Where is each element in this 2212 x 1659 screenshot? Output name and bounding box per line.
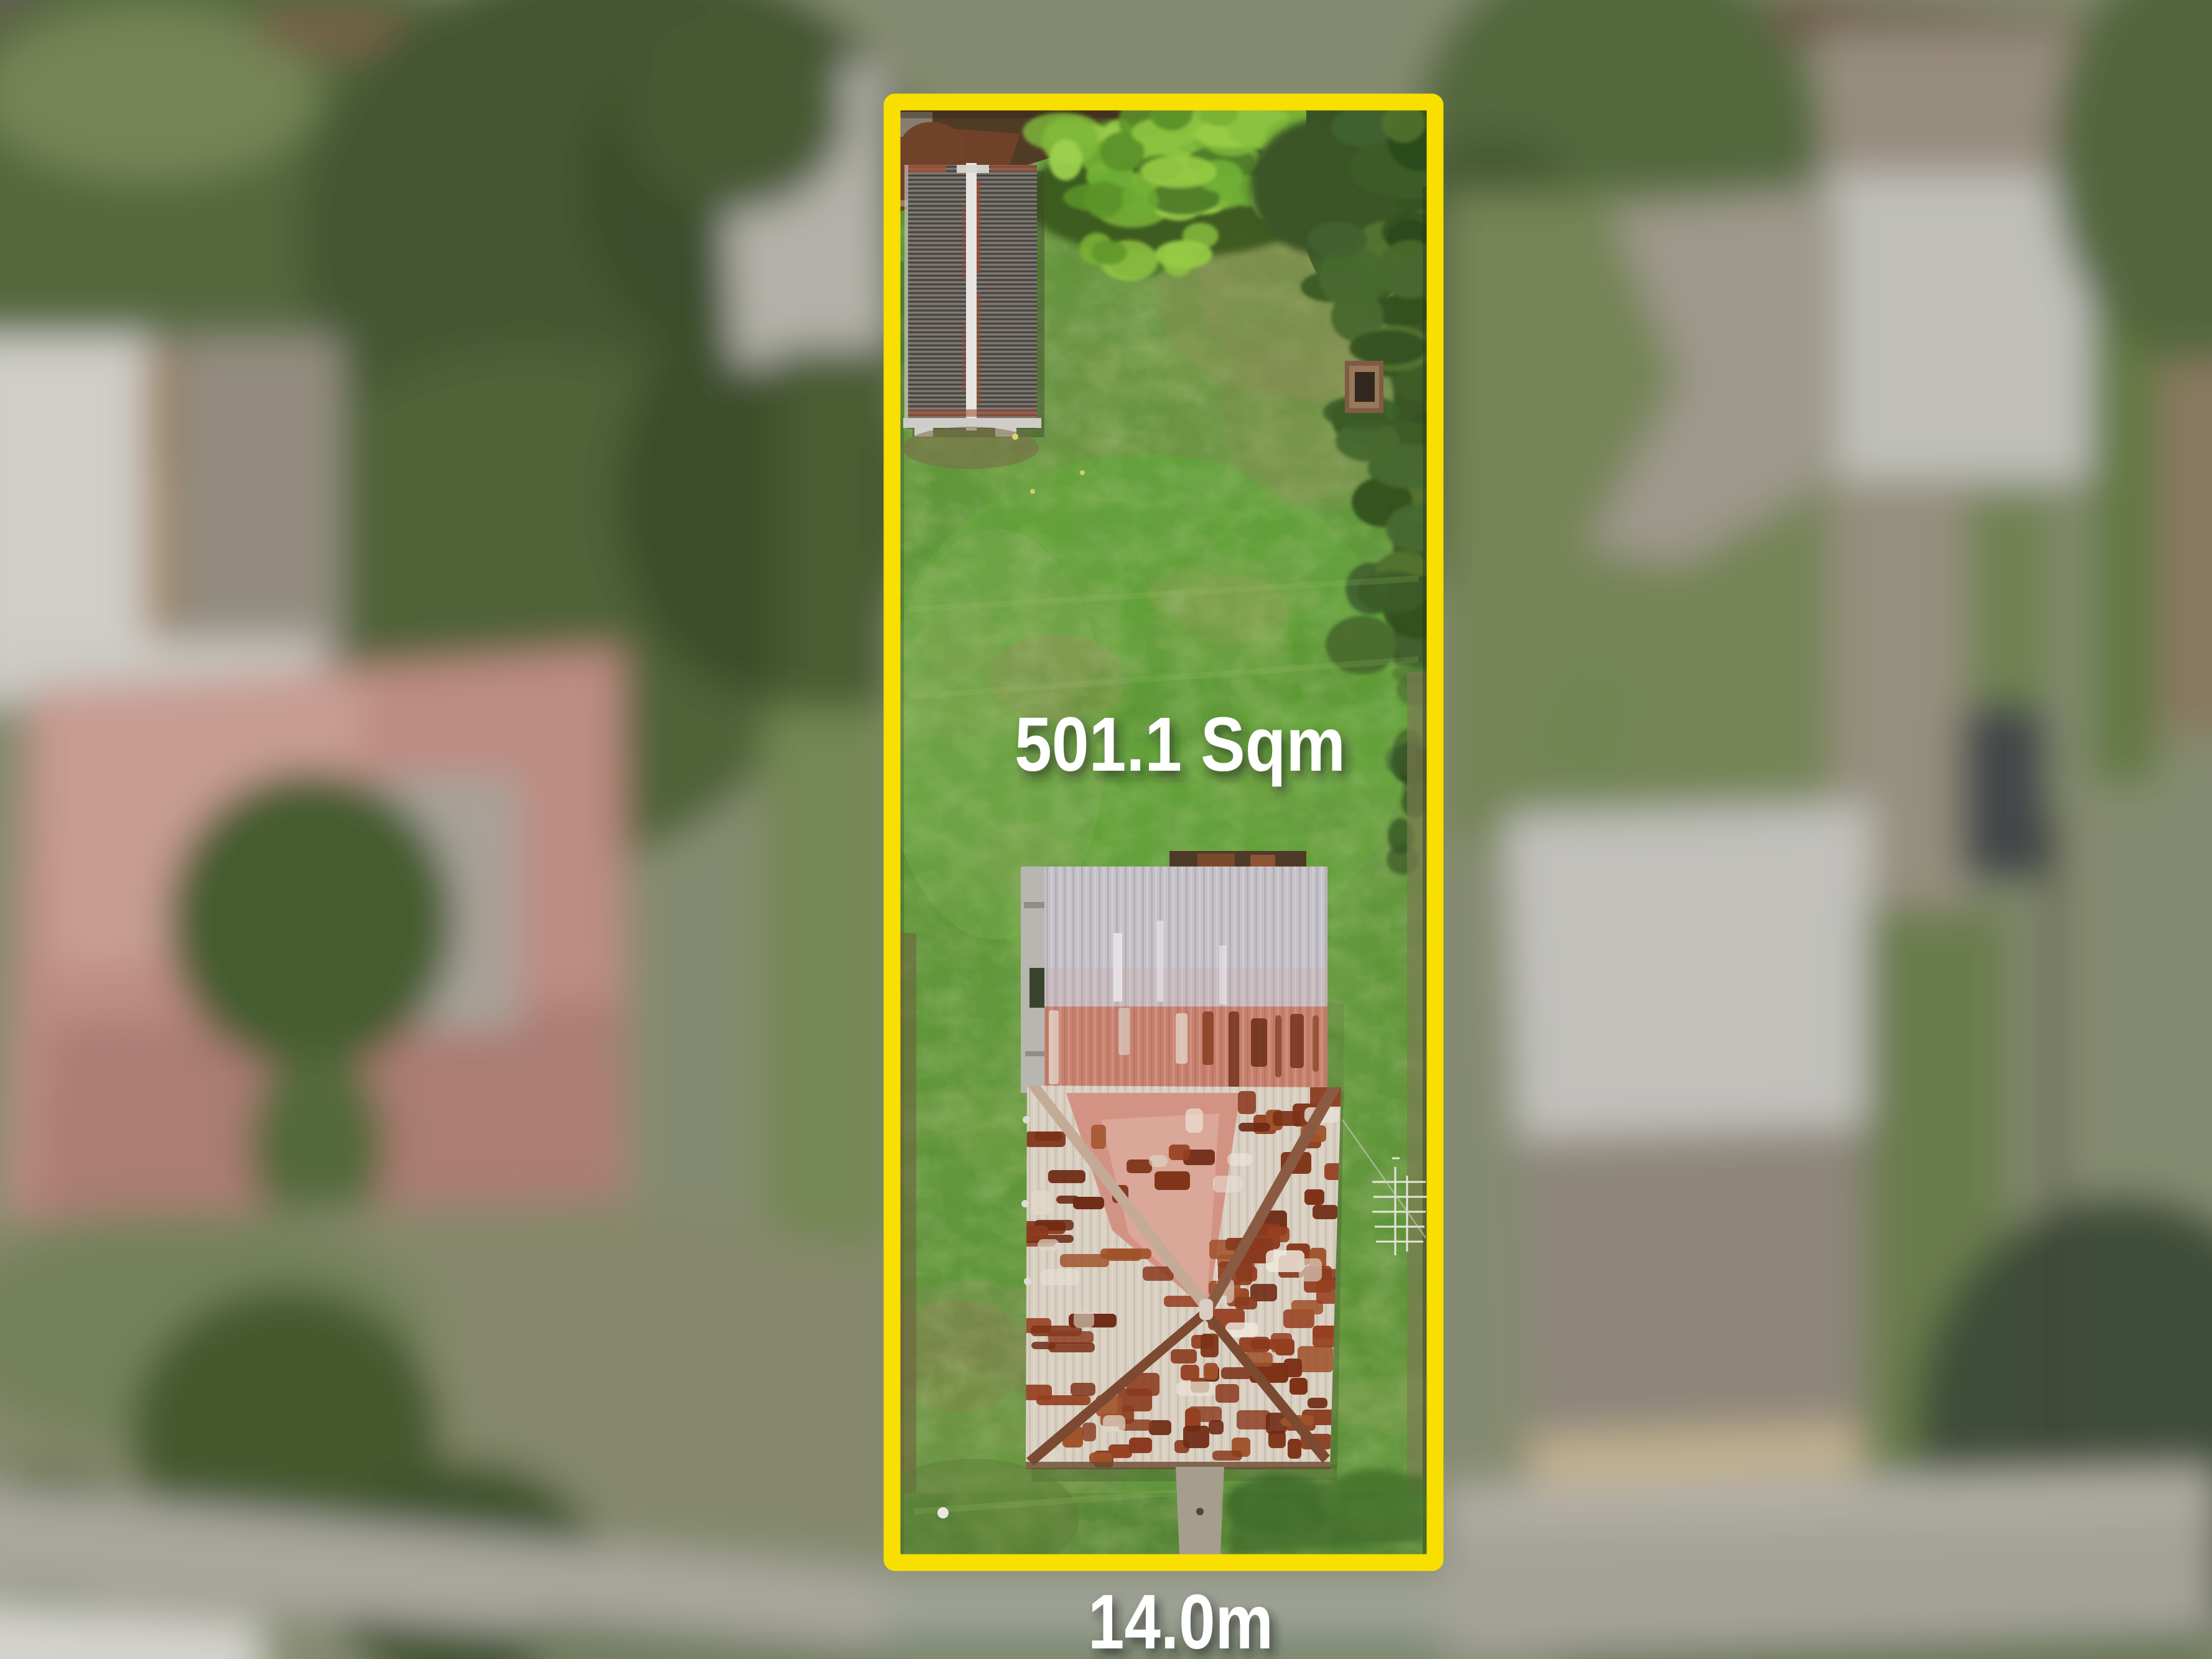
svg-text:14.0m: 14.0m: [1088, 1579, 1273, 1659]
svg-text:501.1 Sqm: 501.1 Sqm: [1015, 702, 1345, 788]
